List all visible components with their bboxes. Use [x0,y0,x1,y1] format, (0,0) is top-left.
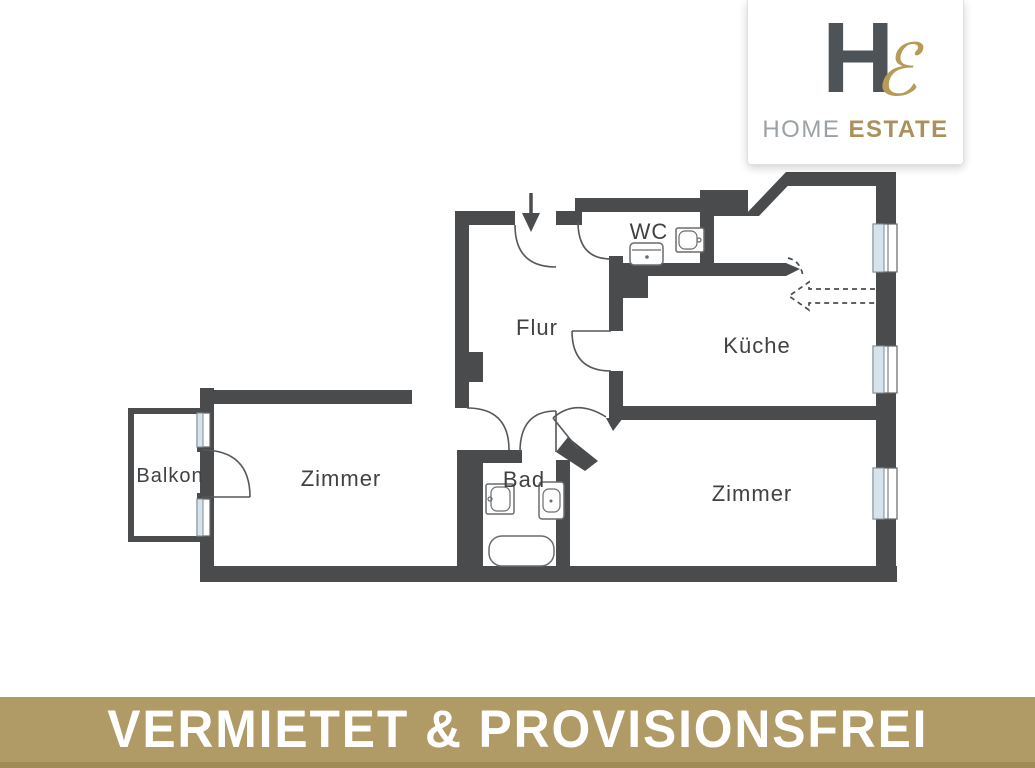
bathtub-icon [489,536,554,566]
status-banner-text: VERMIETET & PROVISIONSFREI [107,699,928,760]
page: WC Flur Küche Balkon Zimmer Bad Zimmer H… [0,0,1035,768]
window [873,224,897,272]
left-room-door-arc [467,408,509,450]
kitchen-door-arc [572,331,611,371]
right-room-door-arc [553,408,606,449]
toilet-icon [630,243,663,265]
room-label-zimmer-left: Zimmer [301,466,382,491]
bath-fixtures [486,482,564,566]
room-label-zimmer-right: Zimmer [712,481,793,506]
room-label-bad: Bad [503,467,545,492]
status-banner: VERMIETET & PROVISIONSFREI [0,697,1035,768]
logo-wordmark: HOME ESTATE [748,116,963,144]
logo-brand-secondary: ESTATE [849,116,949,143]
entrance-door-arc [515,225,556,267]
room-label-balkon: Balkon [136,465,203,487]
walls [200,172,897,582]
room-label-kueche: Küche [723,333,790,358]
window [197,413,210,447]
kitchen-dashed-arrow [789,282,875,310]
sink-icon [676,228,704,252]
logo-card: H ℰ HOME ESTATE [747,0,964,165]
window [873,346,897,393]
entrance-arrow [522,193,540,232]
room-label-flur: Flur [516,315,558,340]
window [197,499,210,536]
wc-door-arc [578,222,611,259]
room-label-wc: WC [630,219,669,244]
bath-door-arc [520,411,556,452]
logo-monogram-e-icon: ℰ [874,34,918,106]
logo-brand-primary: HOME [762,116,840,143]
window [873,468,897,519]
